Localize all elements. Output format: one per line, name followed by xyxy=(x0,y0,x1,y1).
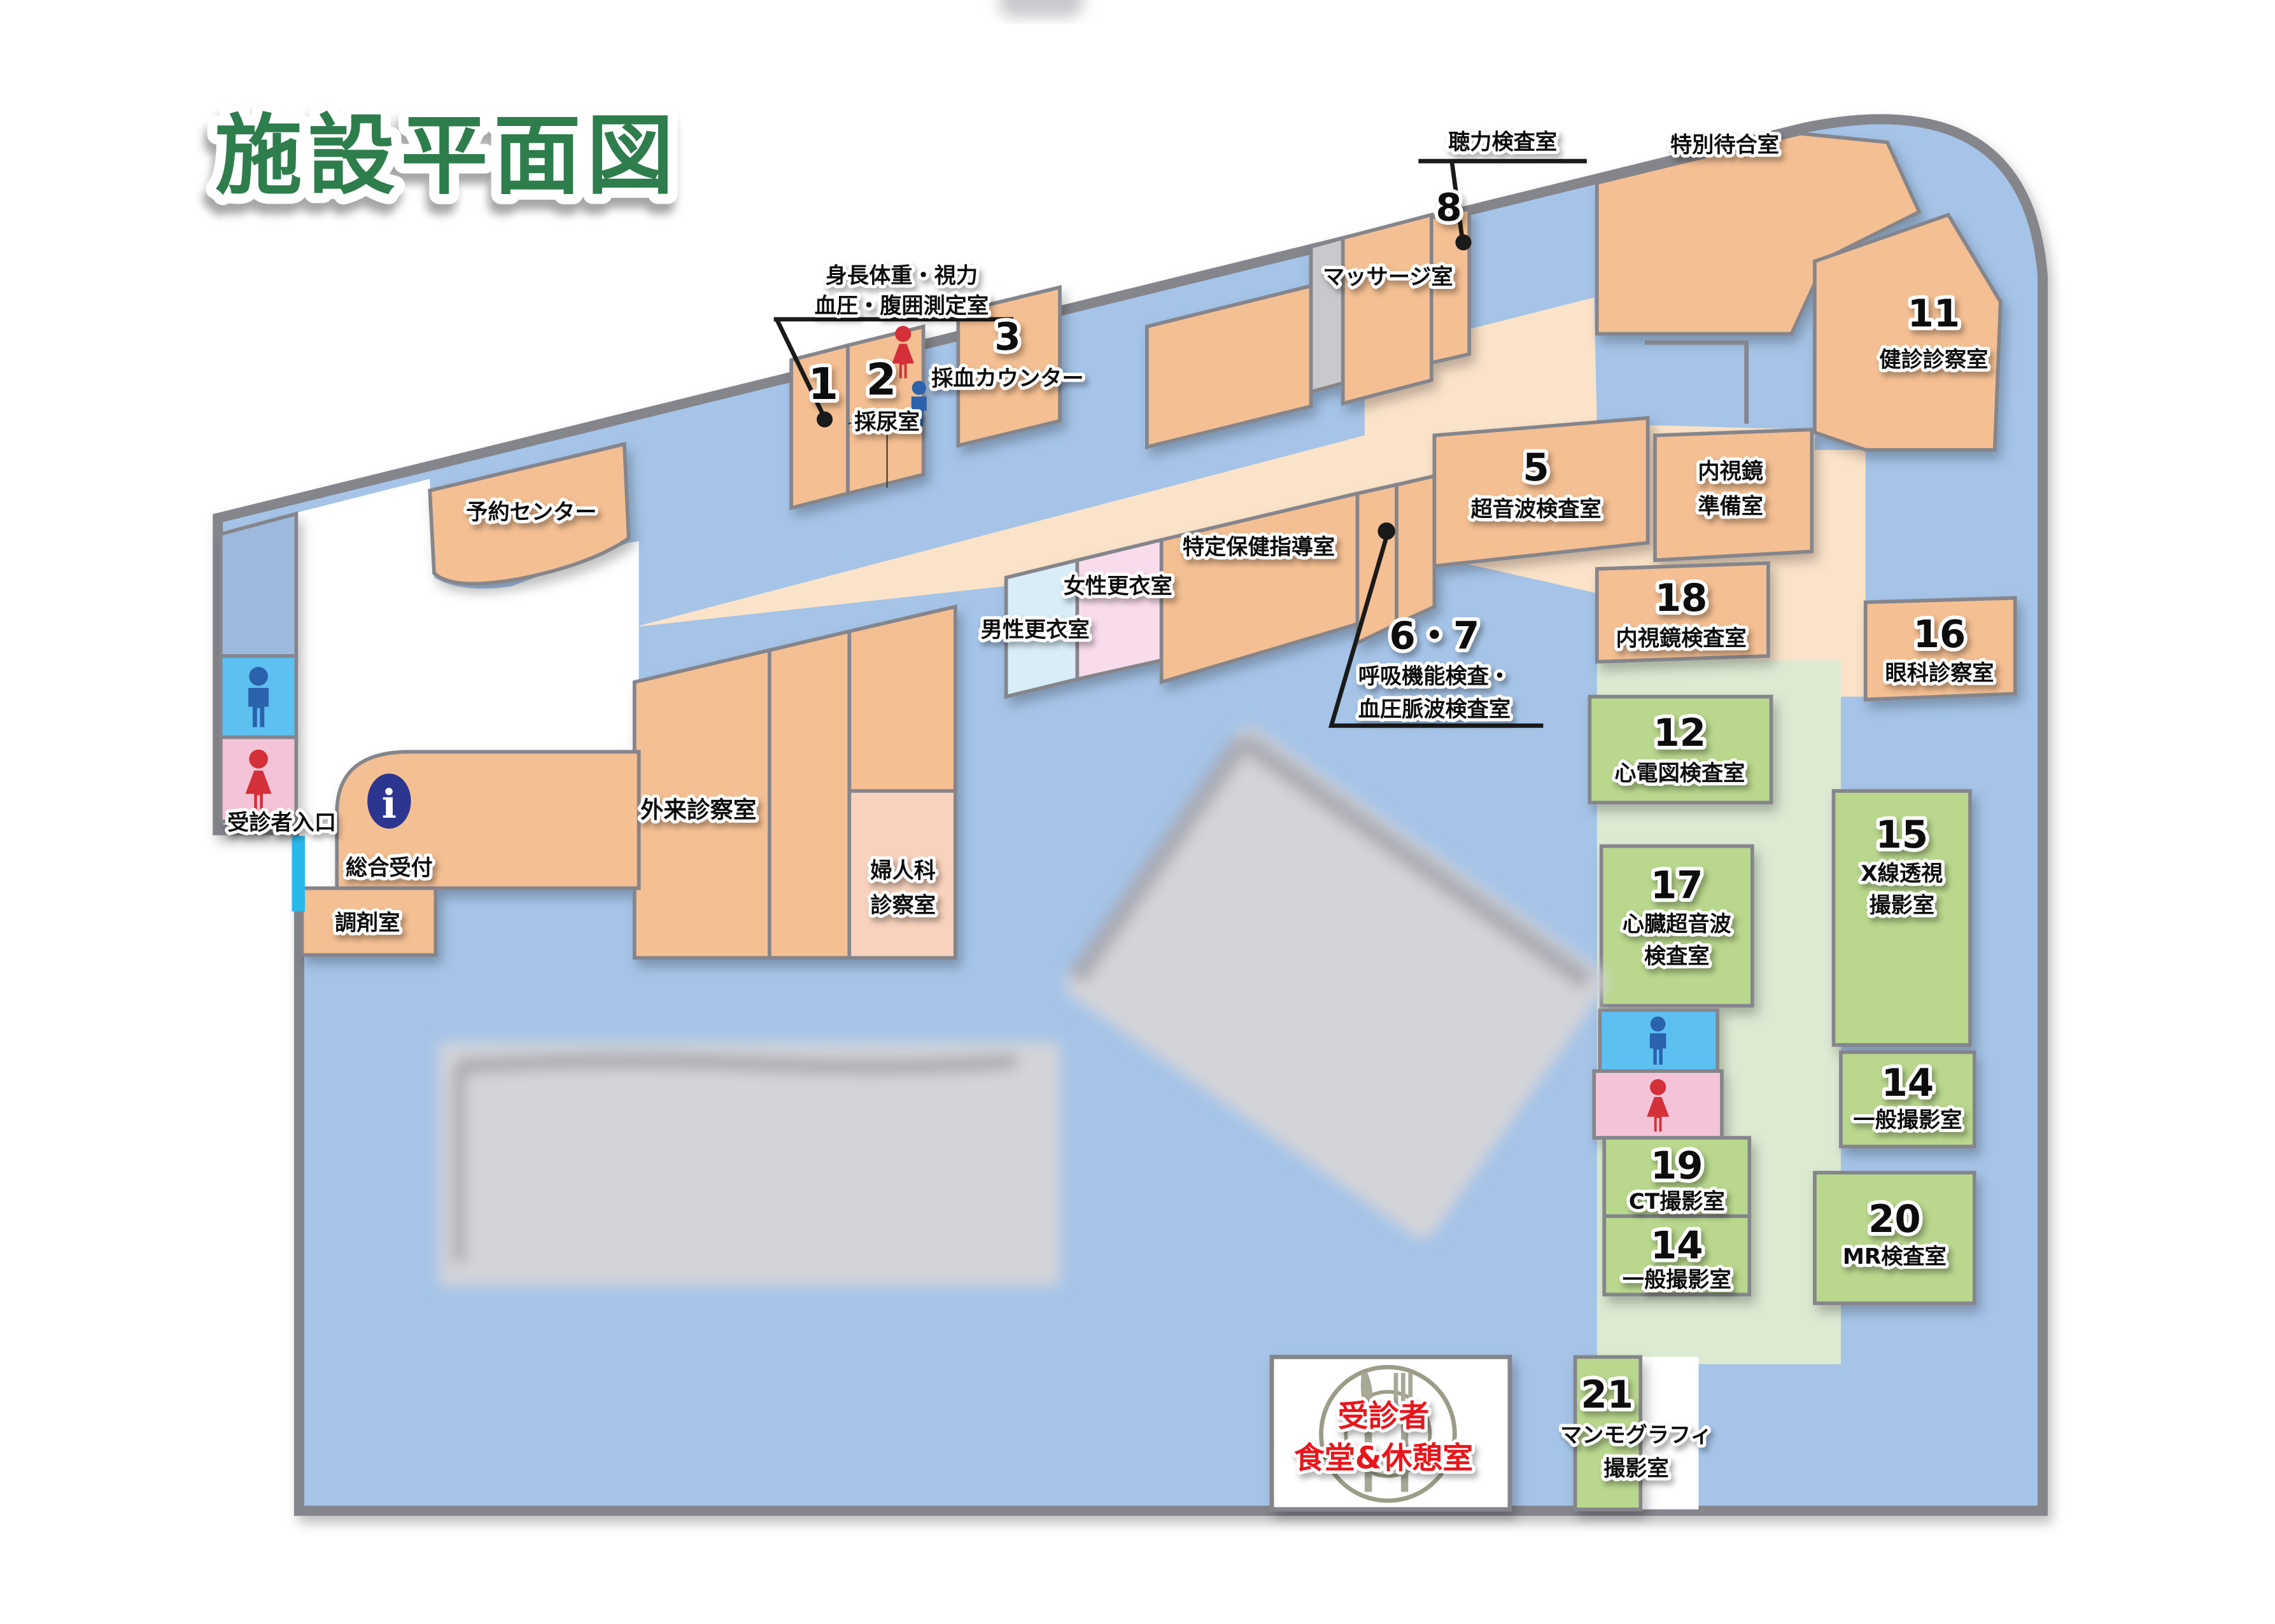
entrance-marker xyxy=(292,836,306,912)
room-7-pulse-wave xyxy=(1397,476,1434,624)
female-changing-label: 女性更衣室 xyxy=(1064,573,1173,599)
outpatient-label: 外来診察室 xyxy=(640,796,756,823)
room-outpatient-exam-2 xyxy=(770,631,849,958)
room-12-number: 12 xyxy=(1654,711,1707,755)
room-5-ultrasound xyxy=(1434,418,1647,566)
reception-label: 総合受付 xyxy=(346,855,433,881)
room-21-number: 21 xyxy=(1581,1373,1634,1417)
special-waiting-label: 特別待合室 xyxy=(1670,132,1779,158)
entrance-label: 受診者入口 xyxy=(227,810,336,836)
room-18-number: 18 xyxy=(1655,576,1708,620)
room-14b-label: 一般撮影室 xyxy=(1853,1108,1962,1133)
gynecology-label-2: 診察室 xyxy=(870,893,936,918)
room-14b-number: 14 xyxy=(1882,1061,1934,1105)
respiratory-number: 6・7 xyxy=(1389,613,1479,657)
room-2-label: 採尿室 xyxy=(854,410,920,435)
room-outpatient-exam-3 xyxy=(849,606,955,791)
svg-text:i: i xyxy=(382,781,397,827)
pharmacy-label: 調剤室 xyxy=(335,910,400,935)
respiratory-label-2: 血圧脈波検査室 xyxy=(1358,697,1511,722)
room-15-label-2: 撮影室 xyxy=(1869,893,1934,918)
room-8-number: 8 xyxy=(1436,186,1462,230)
room-2-number: 2 xyxy=(866,355,897,405)
elevator-block xyxy=(1311,238,1343,392)
room-15-number: 15 xyxy=(1875,813,1928,857)
room-19-number: 19 xyxy=(1651,1144,1703,1187)
page-title: 施設平面図 xyxy=(215,106,680,207)
health-guidance-label: 特定保健指導室 xyxy=(1183,535,1335,560)
room-16-number: 16 xyxy=(1913,612,1966,656)
room-21-label-2: 撮影室 xyxy=(1603,1456,1669,1481)
room-1-number: 1 xyxy=(808,360,838,410)
room-massage-label: マッサージ室 xyxy=(1323,265,1453,290)
strip-room-blue xyxy=(221,514,297,655)
male-changing-label: 男性更衣室 xyxy=(981,617,1090,643)
room-21-label-1: マンモグラフィ xyxy=(1560,1423,1712,1448)
room-reservation-label: 予約センター xyxy=(466,500,596,525)
room-3-number: 3 xyxy=(994,315,1020,359)
room-20-number: 20 xyxy=(1868,1197,1921,1241)
room-18-label: 内視鏡検査室 xyxy=(1616,626,1747,651)
gynecology-label-1: 婦人科 xyxy=(870,858,936,883)
room-14a-number: 14 xyxy=(1651,1223,1703,1267)
measurement-label-line2: 血圧・腹囲測定室 xyxy=(815,293,989,319)
floor-plan-page: i 予約センター 1 身長体重・視力 血圧・腹囲測定室 2 採尿室 3 採血カウ… xyxy=(0,0,2275,1624)
hearing-label: 聴力検査室 xyxy=(1448,129,1557,155)
measurement-label-line1: 身長体重・視力 xyxy=(826,263,978,288)
respiratory-label-1: 呼吸機能検査・ xyxy=(1358,664,1511,689)
room-17-label-2: 検査室 xyxy=(1644,944,1710,969)
blurred-redaction-bottom xyxy=(439,1042,1060,1285)
room-11-label: 健診診察室 xyxy=(1879,347,1988,373)
room-5-number: 5 xyxy=(1523,445,1549,489)
room-3-label: 採血カウンター xyxy=(931,366,1083,391)
room-15-label-1: X線透視 xyxy=(1861,861,1943,886)
room-19-label: CT撮影室 xyxy=(1629,1189,1725,1214)
room-12-label: 心電図検査室 xyxy=(1614,761,1745,787)
info-icon: i xyxy=(367,774,411,829)
room-14a-label: 一般撮影室 xyxy=(1623,1267,1731,1292)
room-11-number: 11 xyxy=(1908,291,1961,335)
endoscope-prep-label-1: 内視鏡 xyxy=(1698,459,1763,484)
room-17-label-1: 心臓超音波 xyxy=(1623,912,1732,937)
room-16-label: 眼科診察室 xyxy=(1885,661,1994,686)
endoscope-prep-label-2: 準備室 xyxy=(1698,494,1763,519)
room-17-number: 17 xyxy=(1651,864,1703,907)
room-5-label: 超音波検査室 xyxy=(1470,496,1601,522)
blurred-fragment-top xyxy=(999,0,1083,17)
room-20-label: MR検査室 xyxy=(1843,1244,1947,1270)
room-female-changing xyxy=(1077,540,1161,679)
floor-plan-canvas: i 予約センター 1 身長体重・視力 血圧・腹囲測定室 2 採尿室 3 採血カウ… xyxy=(0,0,2275,1624)
room-massage xyxy=(1343,215,1432,403)
dining-label-2: 食堂&休憩室 xyxy=(1294,1441,1473,1476)
dining-label-1: 受診者 xyxy=(1338,1399,1430,1434)
